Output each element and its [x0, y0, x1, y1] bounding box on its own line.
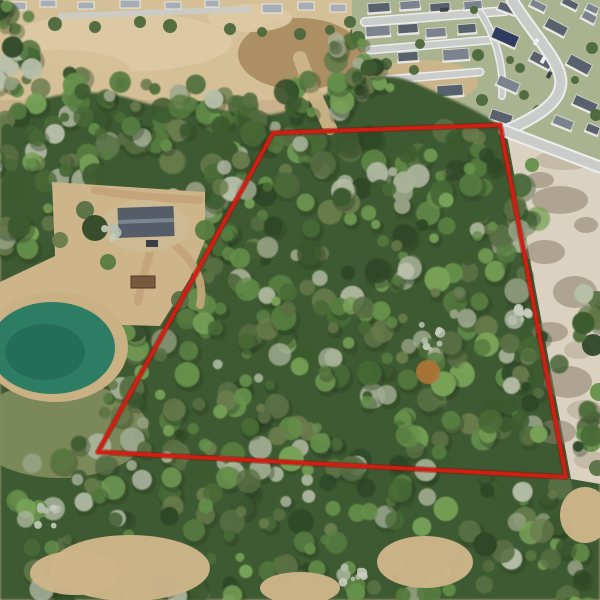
- field-house-roof: [120, 0, 140, 8]
- field-house-roof: [205, 0, 219, 7]
- house-roof: [368, 2, 391, 13]
- field-house-roof: [40, 0, 56, 7]
- field-house-roof: [330, 4, 346, 12]
- neighborhood-house: [425, 27, 448, 40]
- neighborhood-house: [397, 51, 420, 64]
- house-roof: [426, 27, 447, 37]
- field-house-roof: [262, 4, 282, 13]
- house-roof: [458, 23, 477, 33]
- aerial-photo-canvas: [0, 0, 600, 600]
- neighborhood-house: [399, 0, 422, 12]
- field-house-roof: [298, 2, 314, 10]
- house-roof: [400, 0, 421, 9]
- neighborhood-house: [457, 23, 478, 35]
- sand-mottle: [525, 240, 565, 264]
- house-roof: [443, 48, 470, 61]
- neighborhood-house: [442, 48, 471, 63]
- sand-mottle: [574, 217, 598, 233]
- field-house-roof: [78, 2, 94, 9]
- parked-vehicle: [146, 240, 158, 247]
- house-roof: [366, 25, 391, 37]
- shed-roof: [131, 276, 155, 288]
- aerial-photo: [0, 0, 600, 600]
- car: [440, 7, 448, 12]
- pond-deep-water: [5, 324, 85, 380]
- neighborhood-house: [367, 2, 392, 15]
- neighborhood-house: [365, 25, 392, 39]
- field-house-roof: [165, 2, 181, 9]
- neighborhood-house: [397, 23, 420, 36]
- dirt-clearing: [377, 536, 473, 588]
- dirt-clearing: [30, 551, 120, 595]
- house-roof: [398, 51, 419, 61]
- photo-scene: [0, 0, 600, 600]
- house-roof: [398, 23, 419, 33]
